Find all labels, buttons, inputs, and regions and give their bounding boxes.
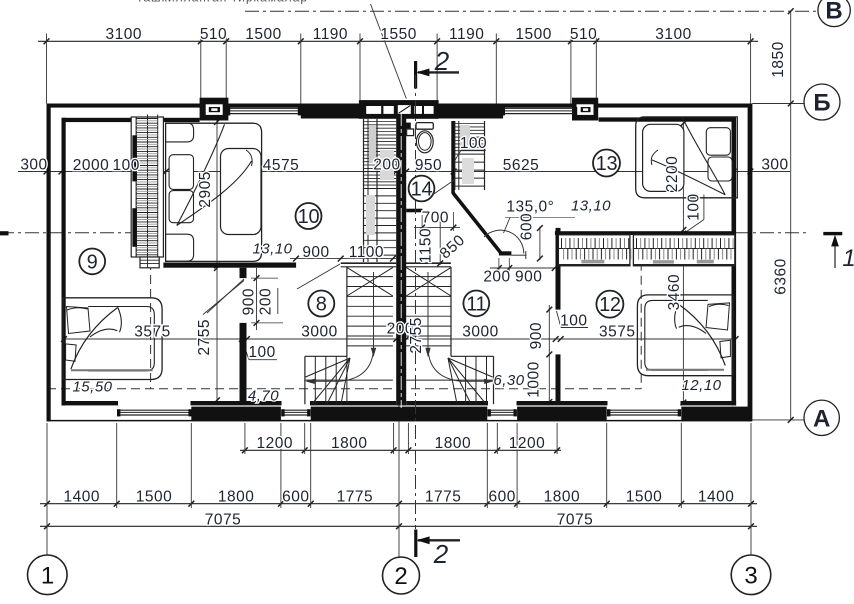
svg-text:1400: 1400 [698, 489, 734, 506]
svg-text:7075: 7075 [205, 511, 241, 528]
svg-text:2: 2 [394, 563, 407, 590]
svg-text:510: 510 [200, 26, 227, 43]
svg-text:100: 100 [560, 312, 587, 329]
svg-text:14: 14 [411, 178, 433, 200]
svg-text:1: 1 [842, 245, 854, 272]
svg-text:600: 600 [518, 213, 535, 240]
svg-text:900: 900 [302, 244, 329, 261]
svg-text:300: 300 [20, 157, 47, 174]
svg-text:7075: 7075 [557, 511, 593, 528]
svg-text:2000: 2000 [73, 157, 109, 174]
svg-text:2: 2 [433, 539, 449, 569]
svg-text:1500: 1500 [245, 26, 281, 43]
svg-text:13: 13 [596, 153, 618, 175]
svg-text:2755: 2755 [408, 317, 425, 353]
svg-text:300: 300 [761, 157, 788, 174]
svg-text:600: 600 [282, 489, 309, 506]
svg-text:200: 200 [257, 288, 274, 315]
svg-text:200: 200 [483, 268, 510, 285]
svg-text:3575: 3575 [599, 324, 635, 341]
svg-text:2: 2 [434, 46, 450, 76]
svg-text:3000: 3000 [462, 324, 498, 341]
svg-text:3575: 3575 [134, 324, 170, 341]
svg-text:600: 600 [489, 489, 516, 506]
svg-text:1190: 1190 [449, 26, 484, 43]
svg-text:1800: 1800 [218, 489, 254, 506]
svg-text:1800: 1800 [331, 435, 367, 452]
svg-text:Б: Б [813, 89, 830, 116]
svg-text:2755: 2755 [196, 319, 213, 355]
svg-text:950: 950 [415, 157, 442, 174]
svg-text:12,10: 12,10 [681, 377, 721, 394]
svg-text:13,10: 13,10 [571, 198, 611, 215]
svg-text:1775: 1775 [337, 489, 373, 506]
svg-text:3100: 3100 [105, 26, 141, 43]
svg-text:1190: 1190 [313, 26, 348, 43]
svg-text:ташкилланган тиркамалар: ташкилланган тиркамалар [137, 0, 308, 5]
svg-text:1150: 1150 [418, 228, 435, 263]
svg-text:2905: 2905 [197, 171, 214, 207]
svg-text:1500: 1500 [136, 489, 172, 506]
svg-text:1800: 1800 [544, 489, 580, 506]
svg-text:900: 900 [241, 288, 258, 315]
svg-text:4575: 4575 [263, 157, 299, 174]
svg-text:1500: 1500 [515, 26, 551, 43]
svg-text:А: А [813, 405, 830, 432]
svg-text:100: 100 [460, 135, 487, 152]
svg-text:900: 900 [528, 322, 545, 349]
svg-text:8: 8 [316, 293, 327, 315]
svg-text:510: 510 [570, 26, 597, 43]
svg-text:1100: 1100 [349, 244, 384, 261]
svg-text:1850: 1850 [770, 41, 787, 77]
svg-text:1500: 1500 [626, 489, 662, 506]
svg-text:1775: 1775 [425, 489, 461, 506]
svg-text:1550: 1550 [380, 26, 416, 43]
svg-text:5625: 5625 [503, 157, 539, 174]
svg-text:1000: 1000 [525, 361, 542, 397]
svg-text:11: 11 [466, 293, 486, 315]
svg-text:3460: 3460 [666, 274, 683, 310]
svg-text:3100: 3100 [655, 26, 691, 43]
svg-text:200: 200 [373, 157, 400, 174]
svg-text:12: 12 [599, 294, 621, 316]
svg-text:15,50: 15,50 [72, 379, 112, 396]
svg-text:13,10: 13,10 [252, 241, 292, 258]
svg-text:9: 9 [87, 251, 98, 273]
svg-text:В: В [825, 0, 842, 25]
svg-text:10: 10 [298, 206, 320, 228]
svg-text:1200: 1200 [257, 435, 293, 452]
svg-text:100: 100 [113, 157, 140, 174]
svg-text:700: 700 [422, 210, 449, 227]
svg-text:3: 3 [744, 562, 757, 589]
svg-text:1: 1 [41, 562, 54, 589]
svg-text:1400: 1400 [64, 489, 100, 506]
svg-text:2200: 2200 [664, 156, 681, 192]
svg-text:1200: 1200 [509, 435, 545, 452]
svg-text:3000: 3000 [301, 324, 337, 341]
svg-text:4,70: 4,70 [248, 388, 279, 405]
svg-text:6360: 6360 [772, 258, 789, 294]
svg-text:100: 100 [248, 344, 275, 361]
svg-text:900: 900 [515, 268, 542, 285]
svg-text:6,30: 6,30 [493, 372, 524, 389]
svg-text:1800: 1800 [435, 435, 471, 452]
svg-text:100: 100 [686, 193, 703, 220]
